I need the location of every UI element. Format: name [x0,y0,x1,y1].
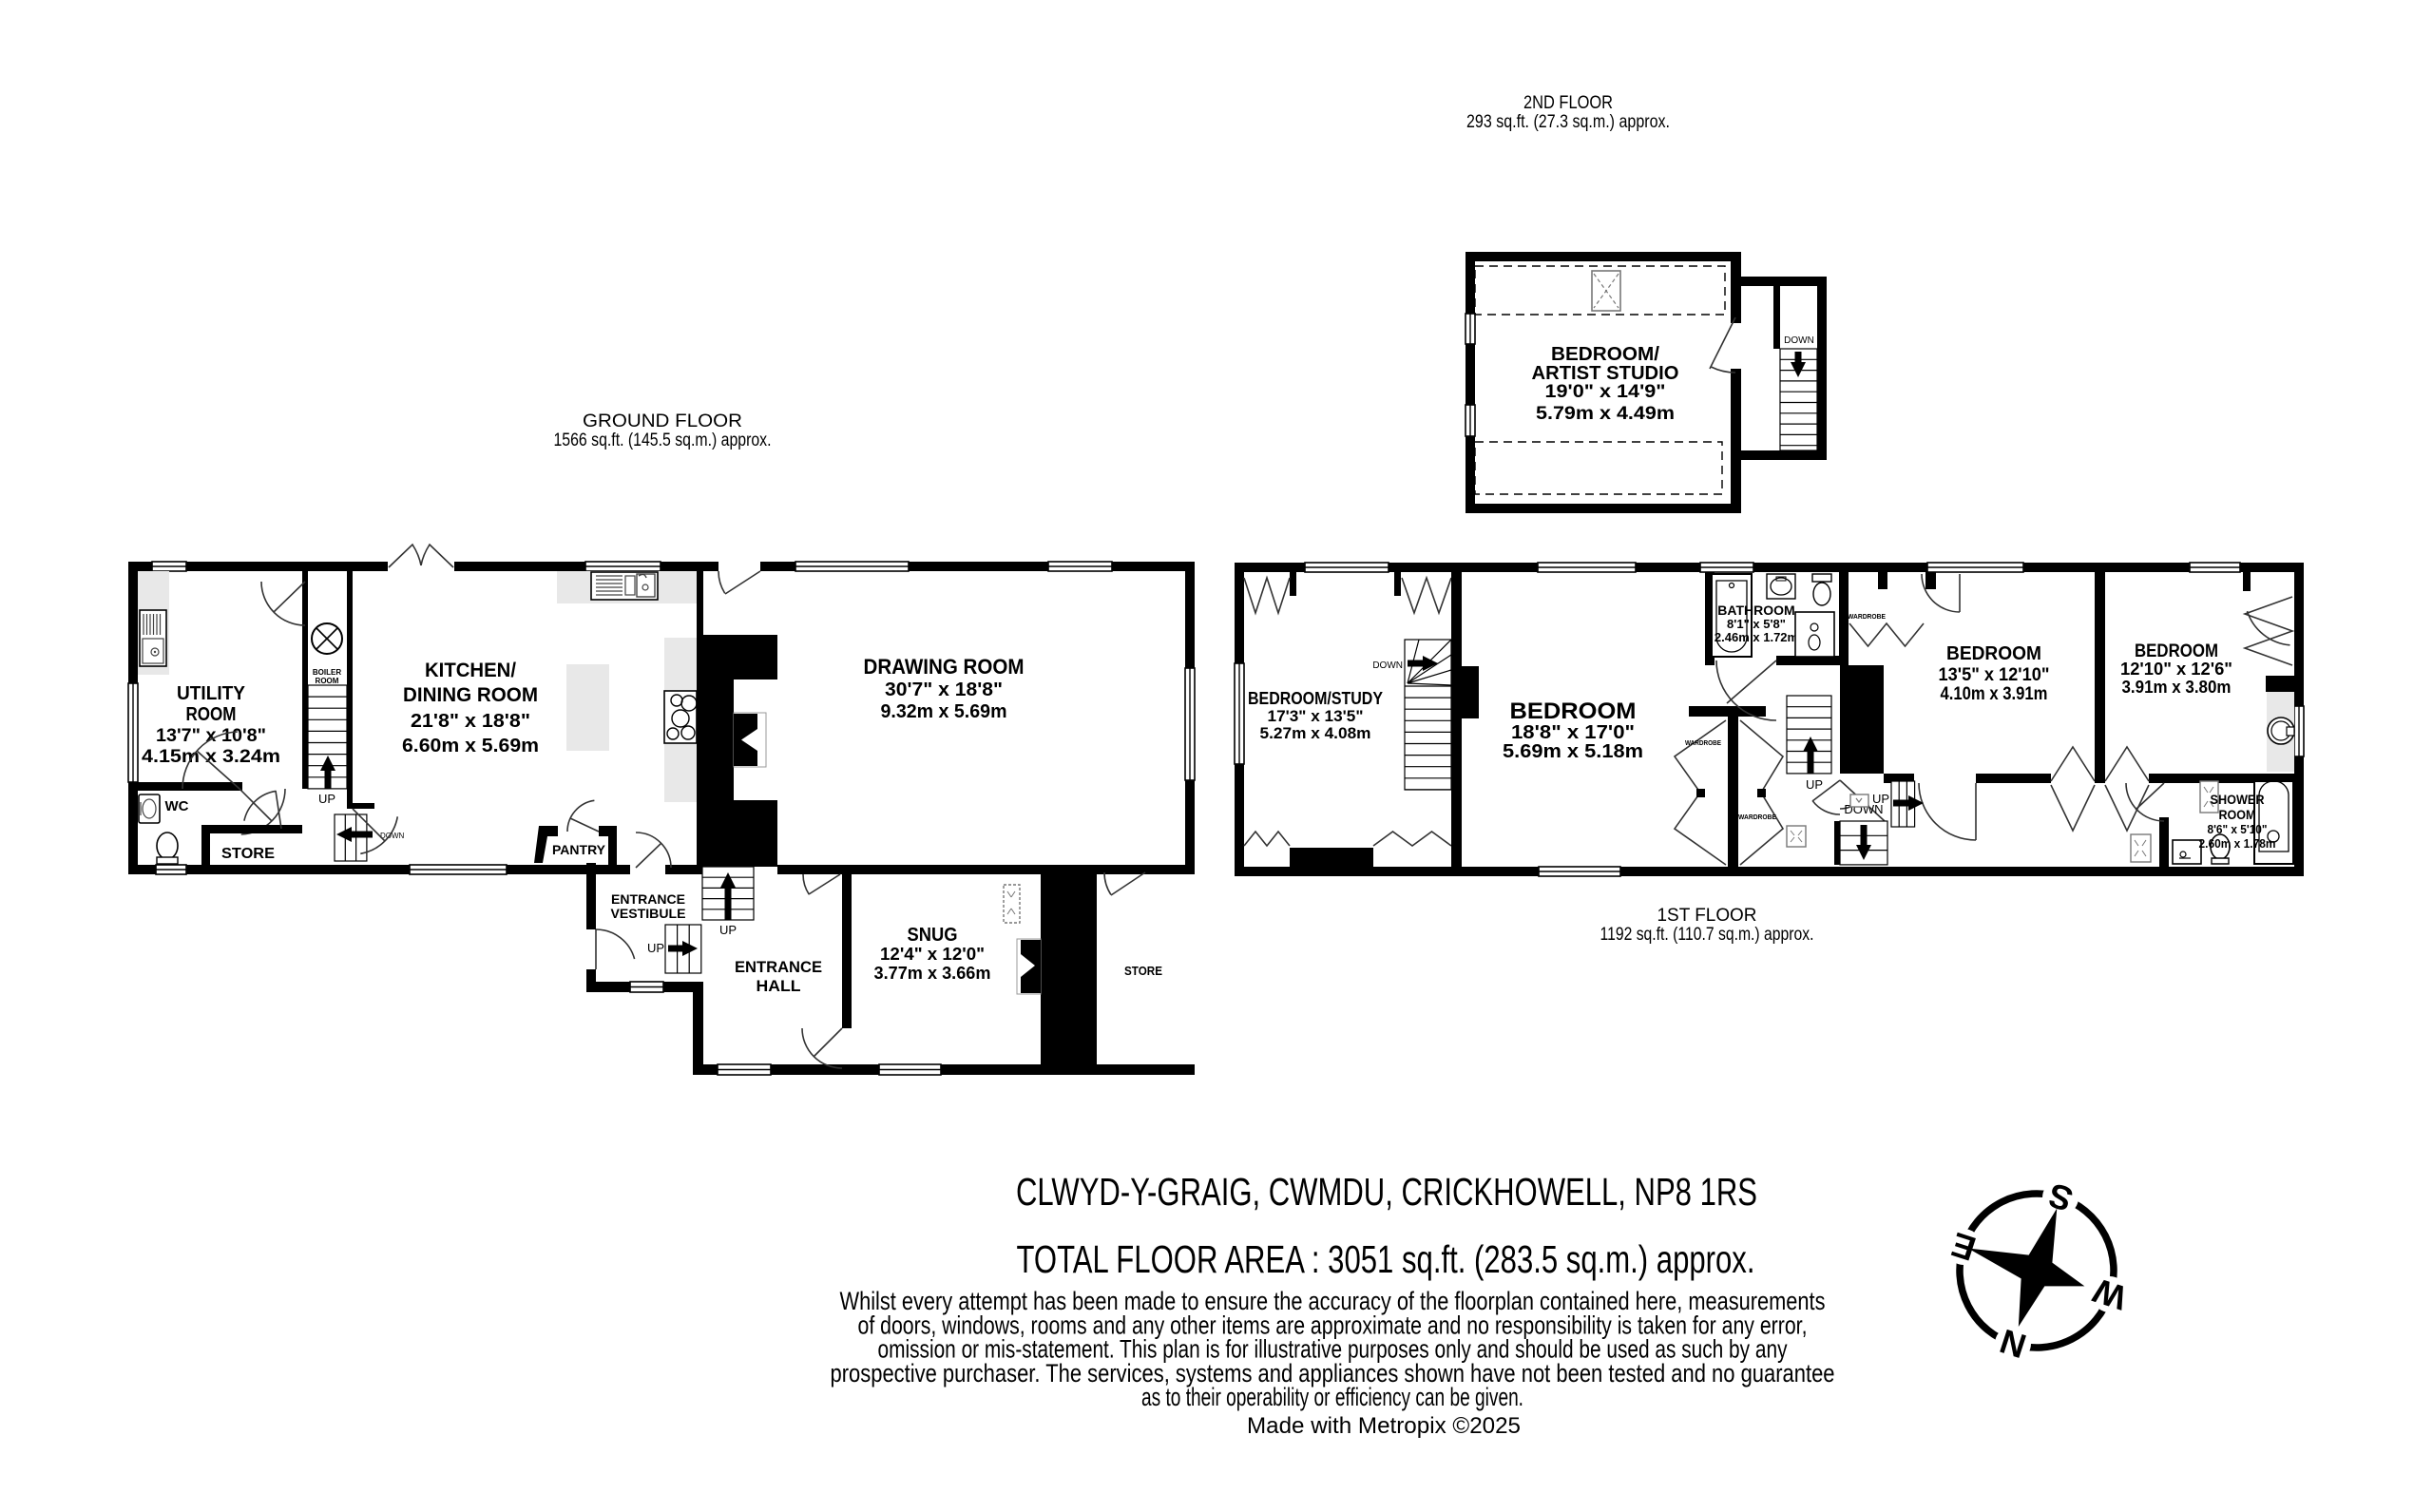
svg-text:CLWYD-Y-GRAIG, CWMDU, CRICKHOW: CLWYD-Y-GRAIG, CWMDU, CRICKHOWELL, NP8 1… [1016,1170,1757,1214]
svg-text:WC: WC [165,798,189,814]
svg-text:as to their operability or eff: as to their operability or efficiency ca… [1141,1383,1523,1411]
svg-text:293 sq.ft. (27.3 sq.m.) approx: 293 sq.ft. (27.3 sq.m.) approx. [1466,112,1670,132]
svg-text:HALL: HALL [757,977,801,995]
svg-text:DOWN: DOWN [1372,660,1403,671]
svg-text:21'8" x 18'8": 21'8" x 18'8" [411,711,530,732]
svg-text:12'4" x 12'0": 12'4" x 12'0" [880,945,985,964]
svg-text:17'3" x 13'5": 17'3" x 13'5" [1268,707,1364,725]
svg-text:ROOM: ROOM [2219,807,2256,822]
svg-text:STORE: STORE [221,846,275,862]
svg-text:ENTRANCE: ENTRANCE [735,958,822,976]
svg-text:GROUND FLOOR: GROUND FLOOR [583,411,742,431]
svg-text:ROOM: ROOM [316,677,339,685]
svg-text:18'8" x 17'0": 18'8" x 17'0" [1511,722,1635,743]
svg-text:UP: UP [719,923,737,937]
svg-text:STORE: STORE [1124,964,1162,978]
svg-text:1ST FLOOR: 1ST FLOOR [1657,906,1757,926]
svg-text:19'0" x 14'9": 19'0" x 14'9" [1545,382,1666,402]
svg-text:BEDROOM/STUDY: BEDROOM/STUDY [1248,689,1383,708]
svg-text:5.79m x 4.49m: 5.79m x 4.49m [1536,404,1675,424]
svg-text:PANTRY: PANTRY [552,842,606,857]
svg-text:5.27m x 4.08m: 5.27m x 4.08m [1260,724,1371,742]
svg-text:8'1" x 5'8": 8'1" x 5'8" [1727,617,1786,631]
svg-text:VESTIBULE: VESTIBULE [611,906,686,921]
svg-text:DOWN: DOWN [1784,335,1814,346]
svg-text:13'7" x 10'8": 13'7" x 10'8" [156,726,266,746]
svg-text:BEDROOM: BEDROOM [1946,643,2041,664]
svg-text:WARDROBE: WARDROBE [1738,813,1776,821]
svg-text:5.69m x 5.18m: 5.69m x 5.18m [1503,741,1643,762]
svg-text:3.77m x 3.66m: 3.77m x 3.66m [874,964,991,983]
svg-text:2.46m x 1.72m: 2.46m x 1.72m [1715,630,1798,644]
svg-text:ROOM: ROOM [186,704,237,725]
svg-text:6.60m x 5.69m: 6.60m x 5.69m [402,736,539,756]
svg-text:UP: UP [1806,777,1823,792]
svg-text:DRAWING ROOM: DRAWING ROOM [864,655,1025,679]
svg-text:2.60m x 1.78m: 2.60m x 1.78m [2199,836,2276,851]
svg-text:Made with Metropix ©2025: Made with Metropix ©2025 [1247,1413,1521,1439]
svg-text:SHOWER: SHOWER [2211,792,2265,807]
svg-text:BATHROOM: BATHROOM [1717,603,1794,618]
svg-text:9.32m x 5.69m: 9.32m x 5.69m [881,701,1007,722]
svg-text:BOILER: BOILER [313,668,341,677]
svg-text:12'10" x 12'6": 12'10" x 12'6" [2120,660,2232,679]
svg-text:DINING ROOM: DINING ROOM [403,684,538,706]
svg-text:2ND FLOOR: 2ND FLOOR [1523,93,1613,113]
svg-text:ENTRANCE: ENTRANCE [611,891,685,907]
svg-text:KITCHEN/: KITCHEN/ [425,660,516,681]
svg-text:13'5" x 12'10": 13'5" x 12'10" [1939,665,2050,685]
svg-text:ARTIST STUDIO: ARTIST STUDIO [1532,363,1679,384]
svg-text:UP: UP [318,792,335,806]
svg-text:4.10m x 3.91m: 4.10m x 3.91m [1941,684,2048,704]
svg-text:SNUG: SNUG [908,925,958,946]
svg-text:3.91m x 3.80m: 3.91m x 3.80m [2122,678,2232,697]
svg-text:1566 sq.ft. (145.5 sq.m.) appr: 1566 sq.ft. (145.5 sq.m.) approx. [554,431,772,450]
svg-text:WARDROBE: WARDROBE [1685,738,1721,747]
svg-text:30'7" x 18'8": 30'7" x 18'8" [885,679,1003,700]
svg-text:TOTAL FLOOR AREA : 3051 sq.ft.: TOTAL FLOOR AREA : 3051 sq.ft. (283.5 sq… [1017,1237,1755,1281]
svg-text:WARDROBE: WARDROBE [1848,612,1886,621]
svg-text:BEDROOM: BEDROOM [1510,699,1637,724]
svg-text:8'6" x 5'10": 8'6" x 5'10" [2208,822,2268,836]
svg-text:1192 sq.ft. (110.7 sq.m.) appr: 1192 sq.ft. (110.7 sq.m.) approx. [1600,925,1814,945]
svg-text:UTILITY: UTILITY [177,683,246,704]
svg-text:BEDROOM/: BEDROOM/ [1551,344,1659,365]
svg-text:UP: UP [647,941,664,955]
svg-text:BEDROOM: BEDROOM [2135,641,2218,661]
